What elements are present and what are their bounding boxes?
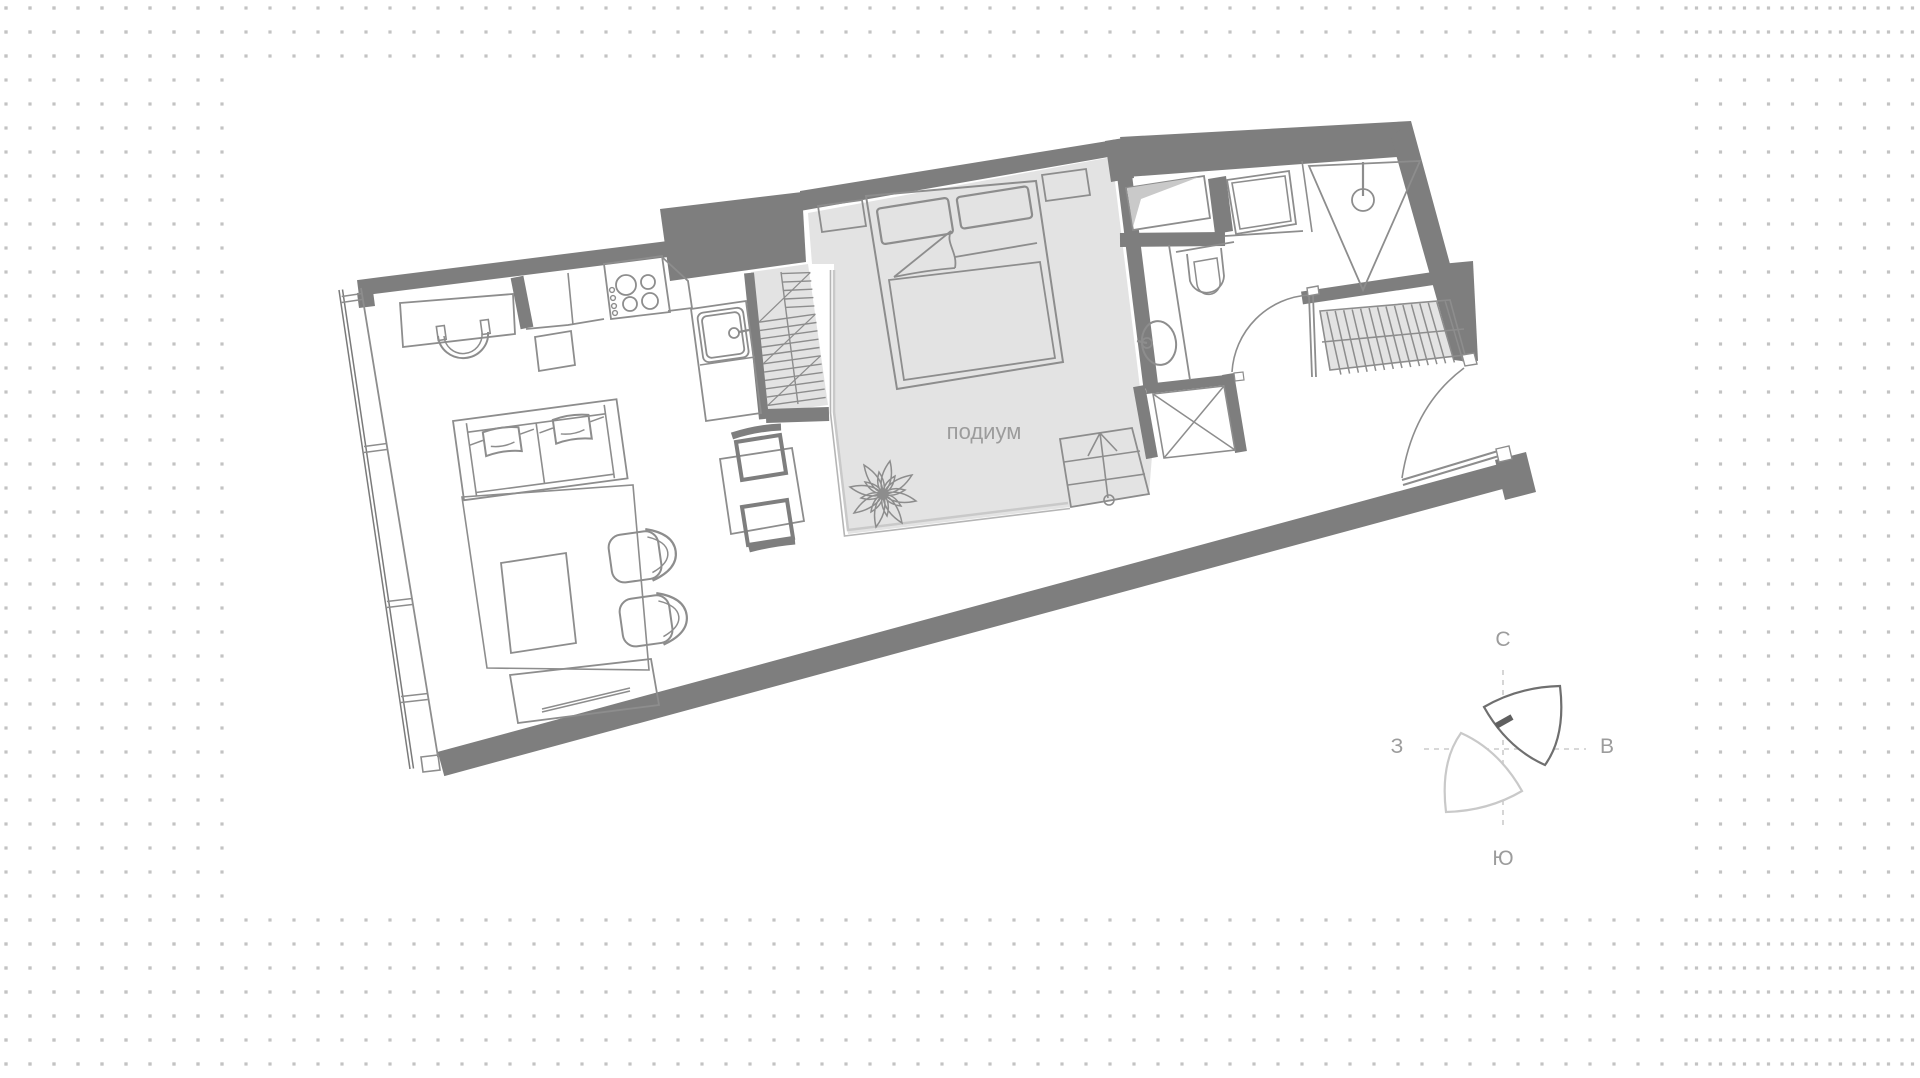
svg-text:С: С	[1495, 628, 1510, 651]
svg-text:В: В	[1600, 735, 1614, 758]
svg-text:З: З	[1391, 735, 1404, 758]
svg-text:подиум: подиум	[947, 419, 1022, 444]
svg-text:Ю: Ю	[1492, 847, 1513, 870]
